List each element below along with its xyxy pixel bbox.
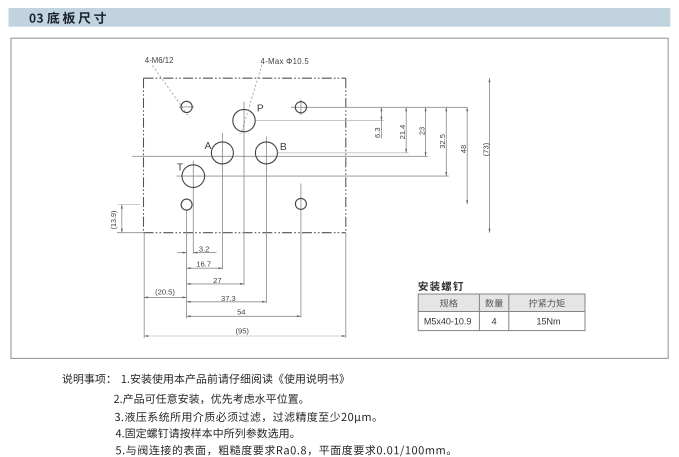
svg-text:(95): (95) — [235, 327, 249, 336]
svg-text:37.3: 37.3 — [221, 294, 236, 303]
svg-text:15Nm: 15Nm — [536, 317, 560, 327]
svg-text:16.7: 16.7 — [196, 259, 211, 268]
svg-text:A: A — [205, 141, 212, 152]
svg-text:4-Max Φ10.5: 4-Max Φ10.5 — [261, 57, 310, 66]
svg-text:21.4: 21.4 — [398, 125, 407, 140]
svg-text:4-M6/12: 4-M6/12 — [145, 56, 174, 65]
svg-text:32.5: 32.5 — [438, 134, 447, 149]
svg-text:(73): (73) — [481, 142, 490, 156]
svg-text:48: 48 — [459, 145, 468, 153]
svg-text:27: 27 — [213, 276, 221, 285]
svg-text:M5x40-10.9: M5x40-10.9 — [424, 317, 472, 327]
svg-text:P: P — [257, 104, 264, 115]
svg-text:3.2: 3.2 — [199, 244, 210, 253]
svg-text:23: 23 — [417, 127, 426, 135]
svg-text:B: B — [280, 142, 287, 153]
svg-text:T: T — [177, 163, 184, 174]
svg-text:(13.9): (13.9) — [109, 211, 118, 230]
svg-text:54: 54 — [237, 308, 245, 317]
svg-text:6.3: 6.3 — [373, 127, 382, 138]
svg-text:(20.5): (20.5) — [155, 288, 175, 297]
svg-text:4: 4 — [492, 317, 497, 327]
